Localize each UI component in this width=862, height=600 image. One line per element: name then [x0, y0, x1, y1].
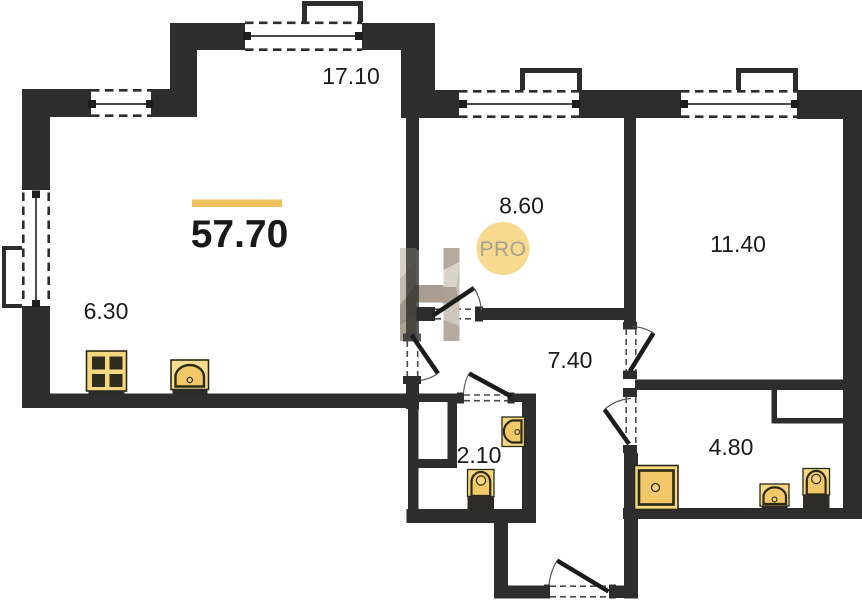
svg-text:PRO: PRO [479, 238, 526, 261]
svg-text:57.70: 57.70 [191, 213, 289, 256]
svg-text:17.10: 17.10 [322, 63, 380, 89]
svg-text:6.30: 6.30 [84, 298, 129, 324]
svg-text:11.40: 11.40 [710, 231, 766, 257]
svg-text:4.80: 4.80 [709, 434, 754, 460]
svg-text:2.10: 2.10 [457, 442, 502, 468]
svg-text:8.60: 8.60 [499, 193, 544, 219]
svg-text:7.40: 7.40 [548, 347, 593, 373]
